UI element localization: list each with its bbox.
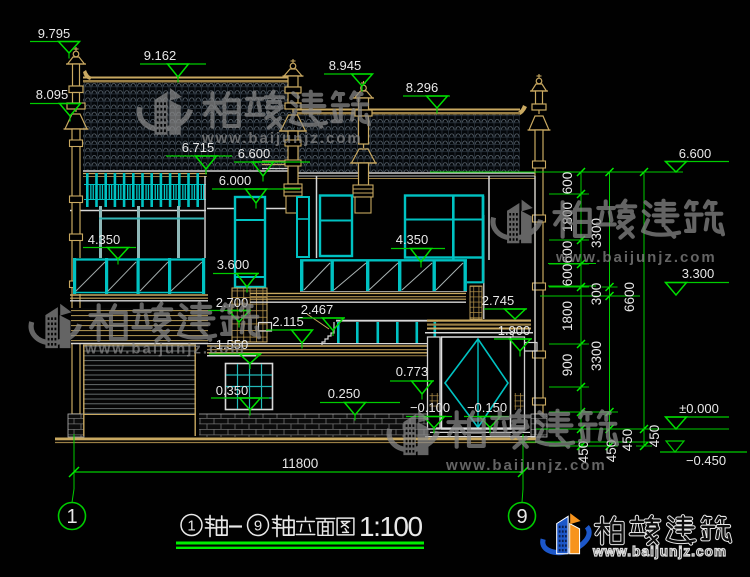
svg-text:2.467: 2.467 xyxy=(301,302,334,317)
svg-text:450: 450 xyxy=(620,429,635,452)
svg-text:3300: 3300 xyxy=(589,341,604,371)
svg-text:−0.450: −0.450 xyxy=(686,453,726,468)
svg-text:2.745: 2.745 xyxy=(482,293,515,308)
svg-text:8.296: 8.296 xyxy=(406,80,439,95)
svg-text:6.600: 6.600 xyxy=(238,146,271,161)
svg-text:6.000: 6.000 xyxy=(219,173,252,188)
svg-text:1:100: 1:100 xyxy=(359,511,422,542)
svg-text:www.baijunjz.com: www.baijunjz.com xyxy=(84,341,246,358)
svg-text:±0.000: ±0.000 xyxy=(679,401,719,416)
svg-text:−0.100: −0.100 xyxy=(410,400,450,415)
svg-text:www.baijunjz.com: www.baijunjz.com xyxy=(445,457,607,474)
svg-text:1: 1 xyxy=(187,518,195,535)
svg-text:11800: 11800 xyxy=(282,456,319,471)
svg-text:9: 9 xyxy=(254,518,262,535)
svg-text:300: 300 xyxy=(589,283,604,306)
svg-text:9.162: 9.162 xyxy=(144,48,177,63)
svg-text:6.600: 6.600 xyxy=(679,146,712,161)
svg-text:600: 600 xyxy=(560,264,575,287)
svg-text:9.795: 9.795 xyxy=(38,26,71,41)
svg-text:9: 9 xyxy=(516,506,527,528)
svg-text:3.300: 3.300 xyxy=(682,266,715,281)
svg-text:1: 1 xyxy=(66,506,77,528)
svg-text:2.115: 2.115 xyxy=(272,314,304,329)
svg-text:1.900: 1.900 xyxy=(498,323,531,338)
svg-text:www.baijunjz.com: www.baijunjz.com xyxy=(201,130,363,147)
svg-text:900: 900 xyxy=(560,354,575,377)
svg-text:0.773: 0.773 xyxy=(396,364,429,379)
svg-text:6600: 6600 xyxy=(622,282,637,312)
svg-text:0.350: 0.350 xyxy=(216,383,249,398)
svg-text:1800: 1800 xyxy=(560,301,575,331)
svg-text:4.350: 4.350 xyxy=(396,232,429,247)
svg-text:4.350: 4.350 xyxy=(88,232,121,247)
svg-text:450: 450 xyxy=(647,425,662,448)
svg-text:www.baijunjz.com: www.baijunjz.com xyxy=(555,249,717,266)
svg-text:8.945: 8.945 xyxy=(329,58,362,73)
svg-text:600: 600 xyxy=(560,172,575,195)
svg-text:8.095: 8.095 xyxy=(36,87,69,102)
svg-text:www.baijunjz.com: www.baijunjz.com xyxy=(592,544,727,559)
svg-text:0.250: 0.250 xyxy=(328,386,361,401)
svg-text:3.600: 3.600 xyxy=(217,257,250,272)
